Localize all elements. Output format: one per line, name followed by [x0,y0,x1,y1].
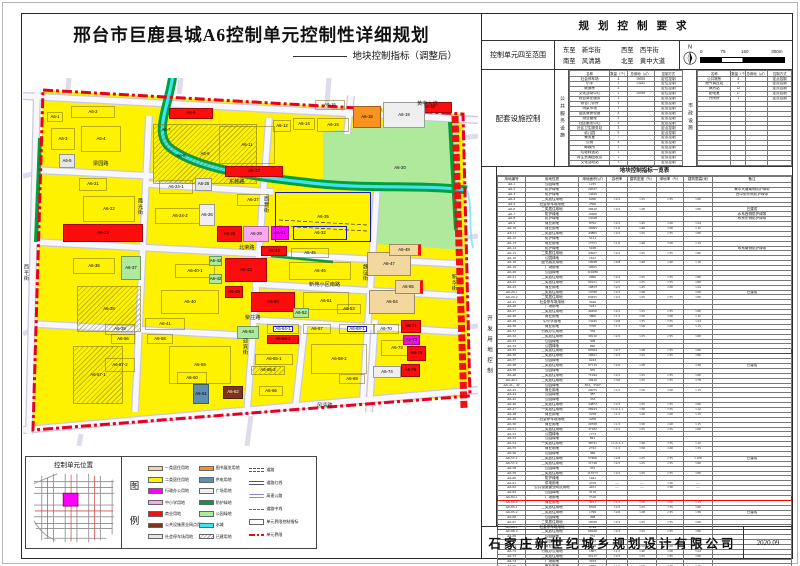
facility-col-header: 总用地（㎡） [745,71,768,77]
facility-cell [698,160,731,165]
public-facilities-label: 公共服务设施 [555,70,569,166]
facility-cell [731,160,745,165]
road-label: 新苑小区南路 [309,281,340,288]
legend-swatch [199,511,214,517]
road-label: 东韩路 [229,178,245,185]
legend-item-label: 广场用地 [216,488,232,494]
range-direction: 西至 西平街 [621,45,679,54]
design-company: 石家庄新世纪城乡规划设计有限公司 [482,527,743,558]
scale-cell: N 075150300m [680,41,792,69]
plot-row: A6-65-2二类居住用地1799≤2.0≤28≥35≤36已建成 [498,510,792,515]
legend-swatch [249,509,264,510]
legend-swatch [148,534,163,540]
minimap-cell: 控制单元位置 [26,457,122,548]
sheet-frame: 邢台市巨鹿县城A6控制单元控制性详细规划 地块控制指标（调整后） [21,13,793,559]
plot-row: A6-57-1二类居住用地57466≤2.8≤25≥35≤100已建成 [498,456,792,461]
scale-tick-label: 0 [700,49,703,54]
legend-swatch [199,534,214,540]
plot-table-section: 开发用地控制 地块控制指标一览表 用地编号用地性质用地面积(㎡)容积率建筑密度（… [482,167,792,527]
legend-item: 广场用地 [199,488,250,494]
range-direction: 南至 风清路 [563,56,621,65]
plot-row: A6-38二类居住用地67115≤2.0≤28 ≤36已建成 [498,363,792,368]
plot-table-wrap: 地块控制指标一览表 用地编号用地性质用地面积(㎡)容积率建筑密度（%）绿地率（%… [497,167,792,526]
facility-col-header: 总用地（㎡） [627,71,654,77]
legend-col-1: 一类居住用地二类居住用地行政办公用地中小学用地商业用地公共设施营业网点用地社会停… [148,460,199,545]
facility-cell: 定点控制 [654,160,682,165]
panel-title: 规划控制要求 [482,14,792,41]
legend-swatch [249,468,264,473]
legend-swatch [249,534,264,536]
plot-table-side-label: 开发用地控制 [482,167,497,526]
legend-item: 行政办公用地 [148,488,199,494]
right-pane: 规划控制要求 控制单元四至范围 东至 新华街西至 西平街南至 风清路北至 黄中大… [481,14,792,558]
legend-swatch [199,500,214,506]
range-direction: 东至 新华街 [563,45,621,54]
road-label: 黄中大道 [417,100,438,107]
legend-item: 社会停车场用地 [148,534,199,540]
legend-item: 图书展览用地 [199,465,250,471]
legend-item-label: 公园绿地 [216,511,232,517]
legend-item-label: 道路红线 [266,480,282,486]
legend-item: 中小学用地 [148,500,199,506]
scale-bar: 075150300m [700,49,789,65]
legend-item-label: 防护绿地 [216,500,232,506]
road-label: 迎宾街 [242,338,249,355]
legend-swatch [148,511,163,517]
legend-item: 供电用地 [199,477,250,483]
scale-bar-strip [700,57,785,63]
legend-item: 公共设施营业网点用地 [148,522,199,528]
legend-item-label: 图书展览用地 [216,465,240,471]
legend-item-label: 水域 [216,522,224,528]
range-directions: 东至 新华街西至 西平街南至 风清路北至 黄中大道 [555,41,680,69]
facilities-label: 配套设施控制 [482,70,555,166]
plot-col-header: 建筑密度（%） [628,177,657,183]
facility-cell [745,160,768,165]
legend-item: 防护绿地 [199,500,250,506]
plan-map: A6-1A6-2A6-3A6-4A6-5A6-6A6-7A6-8A6-9A6-1… [23,78,479,450]
legend-item: 公园绿地 [199,511,250,517]
plot-table: 用地编号用地性质用地面积(㎡)容积率建筑密度（%）绿地率（%）建筑限高(米)备注… [497,176,792,566]
legend-item: 高速公路 [249,493,315,499]
range-row: 控制单元四至范围 东至 新华街西至 西平街南至 风清路北至 黄中大道 N 075… [482,41,792,70]
map-road-labels: 黄中大道新华街西平街风清路梁园路霞光街东韩路北荣路新苑小区南路魏征街西贾街迎宾街… [23,78,478,446]
legend-item: 单元界限控制指标 [249,519,315,525]
legend-item-label: 单元界限控制指标 [266,519,298,525]
minimap-title: 控制单元位置 [54,459,93,469]
facility-cell: 3 [610,160,627,165]
legend-swatch [148,500,163,506]
subtitle-dash [293,56,347,57]
page-subtitle: 地块控制指标（调整后） [22,48,481,62]
facility-cell: 文化活动站 [570,160,610,165]
municipal-facilities-label: 市政设施 [683,70,697,166]
legend-swatch [249,481,264,485]
scale-tick-label: 150 [741,49,749,54]
road-label: 西贾街 [263,196,270,213]
legend-item-label: 高速公路 [266,493,282,499]
legend-item-label: 商业用地 [165,511,181,517]
legend-swatch [148,523,163,529]
svg-text:N: N [688,44,692,50]
legend-item: 水域 [199,522,250,528]
plot-row: A6-6二类居住用地39610≤2.5≤28 ≤60已建成 [498,207,792,212]
legend-item-label: 一类居住用地 [165,465,189,471]
legend-item: 已建用地 [199,534,250,540]
facility-header-row: 名称数量（个）总用地（㎡）控制方式 [698,71,792,77]
plan-sheet: 邢台市巨鹿县城A6控制单元控制性详细规划 地块控制指标（调整后） [0,0,800,566]
road-label: 新华街 [451,274,458,291]
legend-swatch [148,466,163,472]
legend-item-label: 单元界限 [266,532,282,538]
legend-col-3: 道路道路红线高速公路道路中线单元界限控制指标单元界限 [249,460,315,545]
plot-col-header: 建筑限高(米) [684,177,713,183]
road-label: 魏征街 [362,264,369,281]
north-arrow-icon: N [683,42,697,69]
legend-swatch [199,477,214,483]
plot-row: A6-24-1二类居住用地13790≤2.5≤28 ≤60已建成 [498,290,792,295]
scale-tick-label: 75 [720,49,725,54]
facility-col-header: 数量（个） [610,71,627,77]
road-label: 北荣路 [239,244,255,251]
legend-char-li: 例 [130,513,140,527]
facility-row: 文化活动站3定点控制 [570,160,683,165]
road-label: 霞光街 [137,198,144,215]
legend-item: 一类居住用地 [148,465,199,471]
legend-swatch [199,466,214,472]
legend-item-label: 中小学用地 [165,500,185,506]
plot-col-header: 绿地率（%） [657,177,684,183]
legend-item-label: 社会停车场用地 [165,534,193,540]
legend-swatch [199,488,214,494]
legend-item: 道路 [249,467,315,473]
title-block: 邢台市巨鹿县城A6控制单元控制性详细规划 地块控制指标（调整后） [22,14,481,62]
road-label: 梁园路 [93,160,109,167]
legend-swatch [199,523,214,529]
range-direction: 北至 黄中大道 [621,56,679,65]
legend-item: 道路中线 [249,506,315,512]
road-label: 柴庄路 [245,314,261,321]
legend-char-tu: 图 [130,478,140,492]
legend-item: 单元界限 [249,532,315,538]
legend-columns: 一类居住用地二类居住用地行政办公用地中小学用地商业用地公共设施营业网点用地社会停… [147,457,316,548]
legend-item-label: 行政办公用地 [165,488,189,494]
facility-cell [627,160,654,165]
facilities-section: 配套设施控制 公共服务设施 名称数量（个）总用地（㎡）控制方式社会停车场4160… [482,70,792,167]
legend-item: 商业用地 [148,511,199,517]
facility-cell [768,160,792,165]
legend-header: 图 例 [122,457,147,548]
legend-swatch [148,488,163,494]
legend-col-2: 图书展览用地供电用地广场用地防护绿地公园绿地水域已建用地 [199,460,250,545]
road-label: 风清路 [317,402,333,409]
facility-header-row: 名称数量（个）总用地（㎡）控制方式 [570,71,683,77]
legend-item-label: 已建用地 [216,534,232,540]
legend-item-label: 供电用地 [216,477,232,483]
legend: 控制单元位置 [25,456,317,549]
left-pane: 邢台市巨鹿县城A6控制单元控制性详细规划 地块控制指标（调整后） [22,14,481,558]
scale-tick-label: 300m [771,49,782,54]
plot-col-header: 用地面积(㎡) [579,177,607,183]
legend-item-label: 道路 [266,467,274,473]
public-facilities-table: 名称数量（个）总用地（㎡）控制方式社会停车场416010定位控制小学113245… [569,70,683,166]
legend-item: 道路红线 [249,480,315,486]
legend-swatch [249,519,264,525]
municipal-facilities-table: 名称数量（个）总用地（㎡）控制方式公共厕所4定点控制燃气调压站3定点控制换热站1… [697,70,792,166]
facility-col-header: 数量（个） [731,71,745,77]
minimap-drawing [30,469,118,547]
range-label: 控制单元四至范围 [482,41,555,69]
title-bar-footer: 石家庄新世纪城乡规划设计有限公司 2020.09 [482,527,792,558]
legend-swatch [249,494,264,498]
facility-empty-row [698,160,792,165]
legend-item-label: 道路中线 [266,506,282,512]
legend-swatch [148,477,163,483]
road-label: 西平街 [23,264,30,281]
page-title: 邢台市巨鹿县城A6控制单元控制性详细规划 [22,22,481,47]
plot-table-title: 地块控制指标一览表 [497,167,792,176]
legend-item: 二类居住用地 [148,477,199,483]
legend-item-label: 二类居住用地 [165,477,189,483]
plan-date: 2020.09 [743,527,792,558]
